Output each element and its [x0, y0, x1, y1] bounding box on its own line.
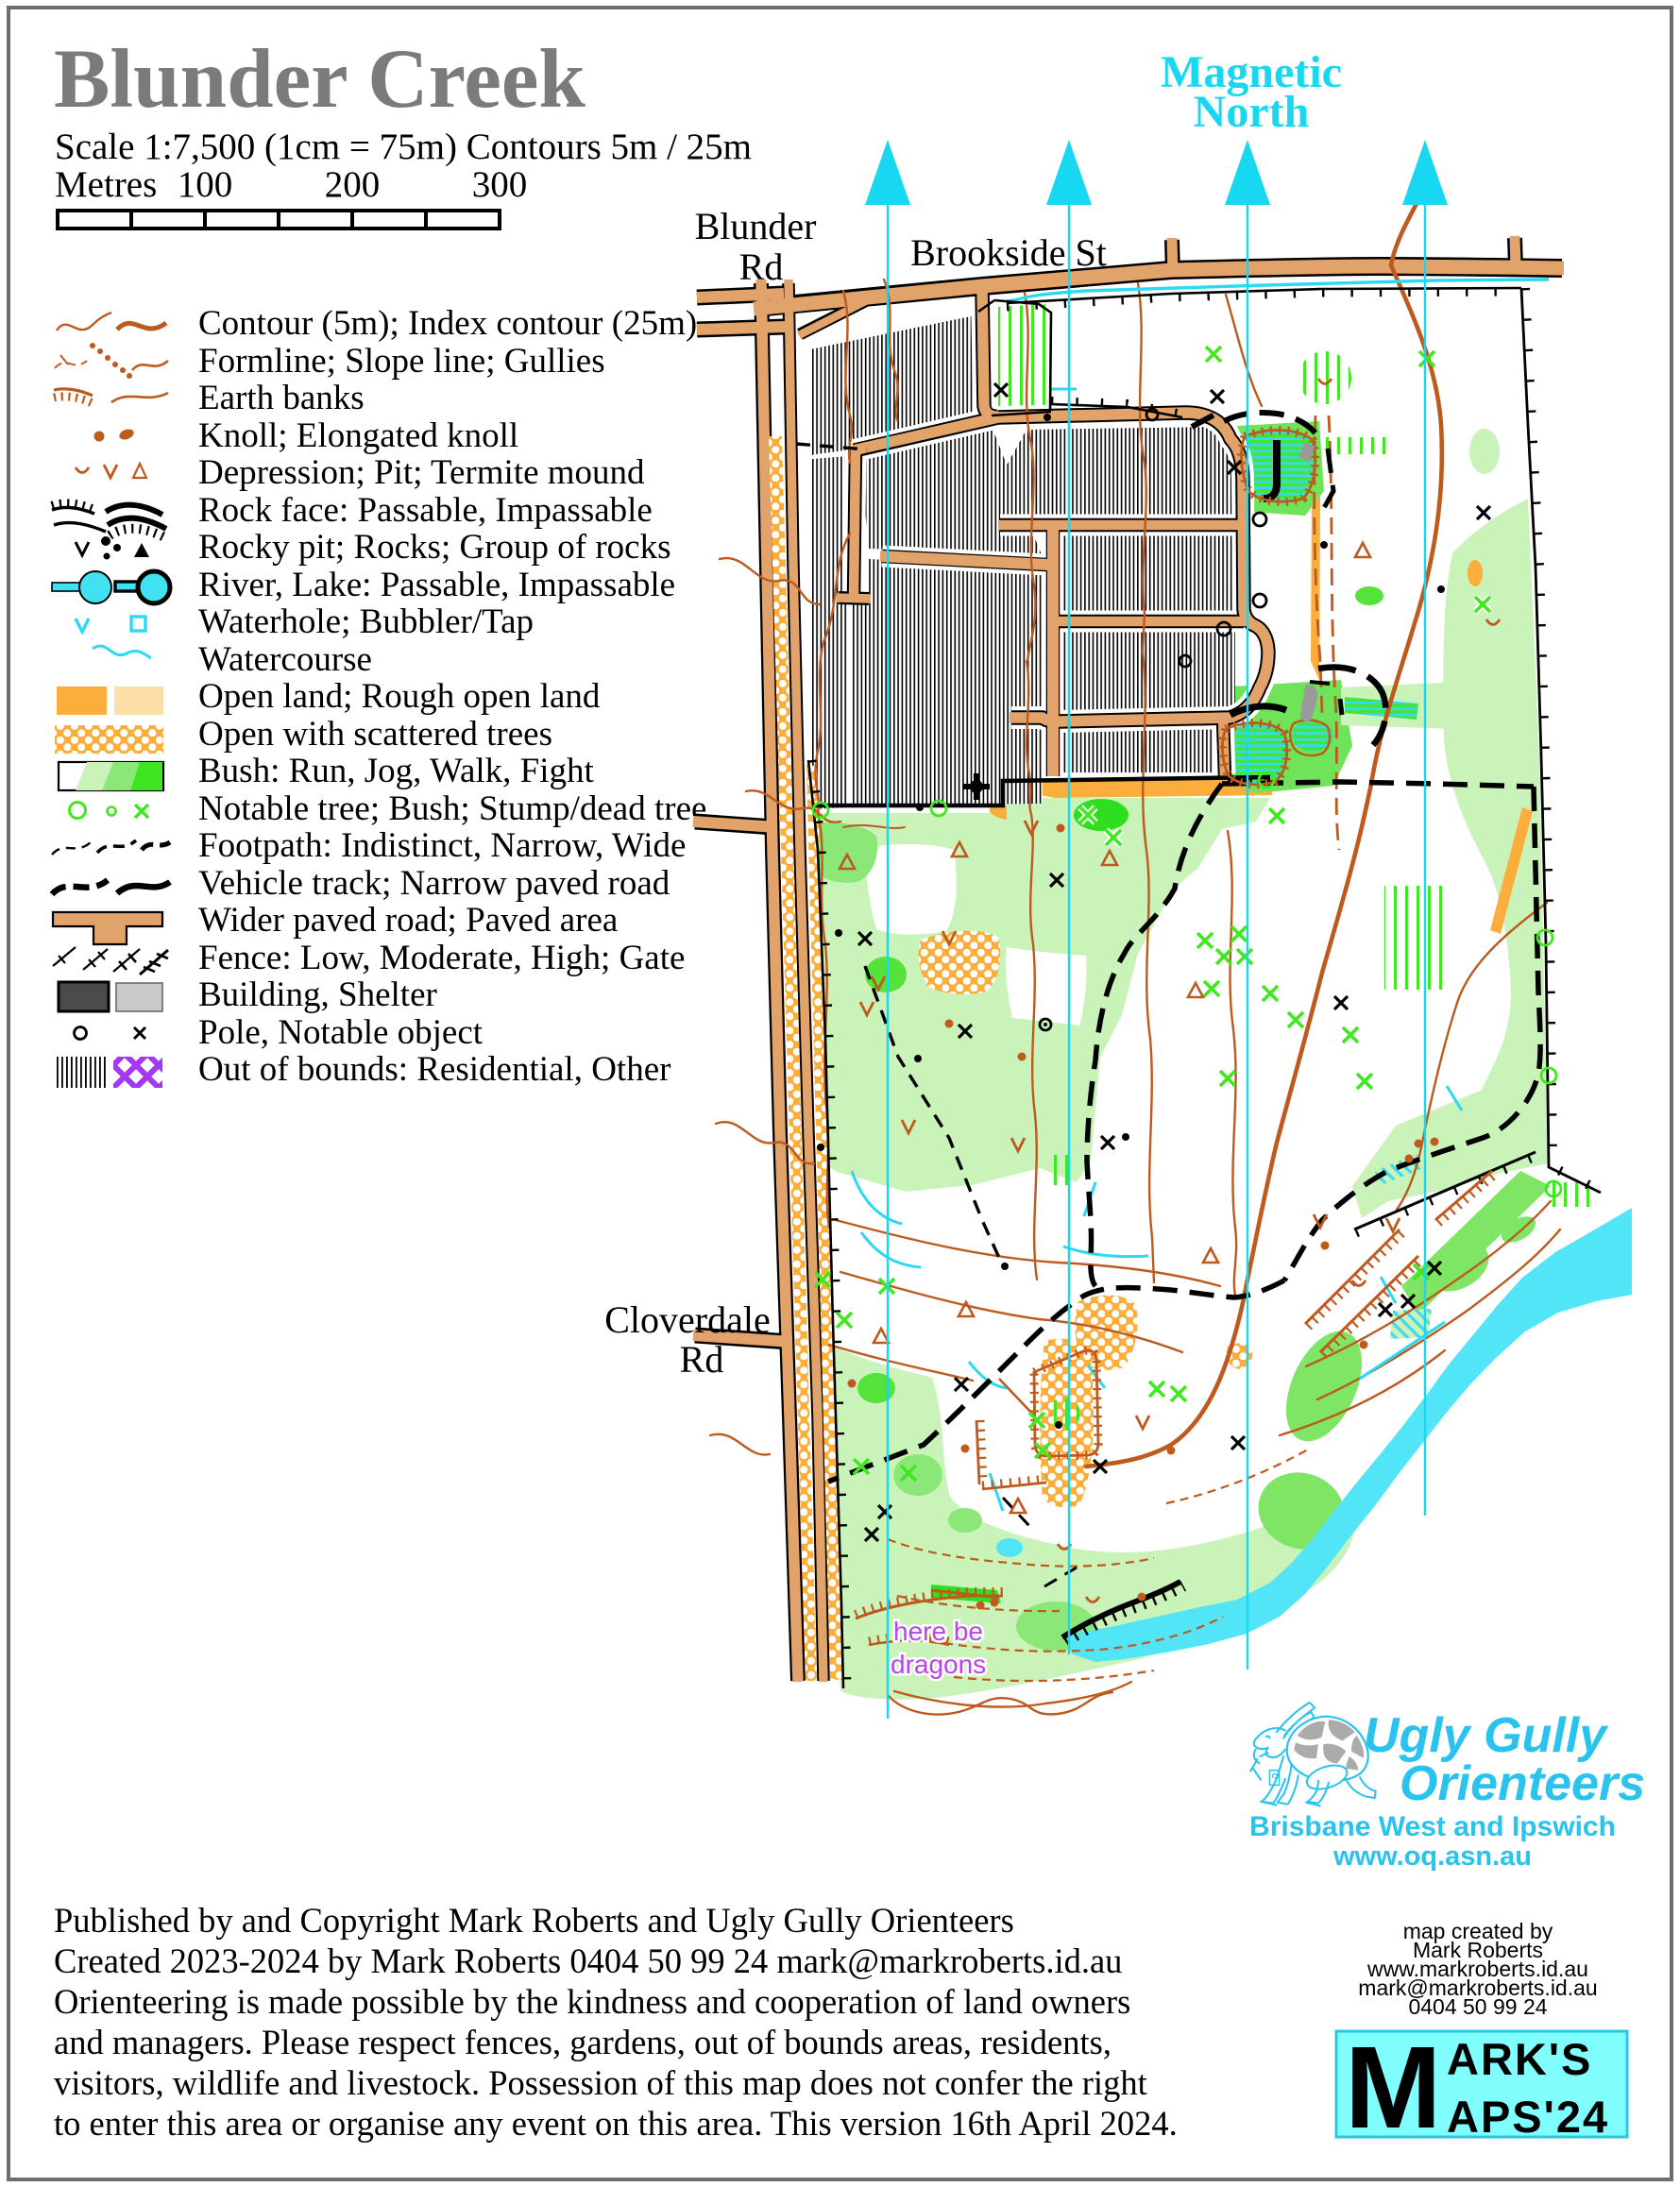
svg-text:Published by and Copyright Mar: Published by and Copyright Mark Roberts … — [54, 1901, 1014, 1940]
svg-text:to enter this area or organise: to enter this area or organise any event… — [54, 2104, 1178, 2143]
svg-text:Watercourse: Watercourse — [198, 640, 372, 679]
svg-text:Rd: Rd — [680, 1338, 724, 1381]
svg-text:Orienteers: Orienteers — [1400, 1756, 1645, 1811]
svg-text:Cloverdale: Cloverdale — [604, 1298, 771, 1341]
svg-text:APS'24: APS'24 — [1447, 2092, 1609, 2142]
svg-text:Created 2023-2024 by Mark Robe: Created 2023-2024 by Mark Roberts 0404 5… — [54, 1941, 1122, 1980]
svg-text:Vehicle track; Narrow paved ro: Vehicle track; Narrow paved road — [198, 864, 670, 903]
svg-text:200: 200 — [325, 164, 381, 205]
svg-text:www.oq.asn.au: www.oq.asn.au — [1332, 1841, 1532, 1872]
svg-text:River, Lake: Passable, Impassa: River, Lake: Passable, Impassable — [198, 566, 675, 604]
svg-text:M: M — [1345, 2024, 1441, 2153]
svg-text:Blunder Creek: Blunder Creek — [54, 33, 585, 126]
svg-text:Brisbane West and Ipswich: Brisbane West and Ipswich — [1249, 1811, 1616, 1842]
svg-text:Fence: Low, Moderate, High; Ga: Fence: Low, Moderate, High; Gate — [198, 939, 685, 977]
svg-text:Rd: Rd — [739, 246, 784, 288]
svg-text:Scale 1:7,500 (1cm = 75m) Con: Scale 1:7,500 (1cm = 75m) Contours 5m / … — [55, 127, 752, 167]
svg-text:Orienteering is made possible: Orienteering is made possible by the kin… — [54, 1982, 1130, 2021]
svg-text:dragons: dragons — [891, 1650, 986, 1679]
svg-text:Brookside St: Brookside St — [910, 231, 1107, 274]
svg-text:and managers. Please respect f: and managers. Please respect fences, gar… — [54, 2023, 1112, 2061]
svg-text:Contour (5m); Index contour (2: Contour (5m); Index contour (25m) — [198, 304, 697, 343]
svg-text:100: 100 — [178, 164, 233, 205]
svg-text:Footpath: Indistinct, Narrow,: Footpath: Indistinct, Narrow, Wide — [198, 826, 686, 865]
svg-text:North: North — [1194, 87, 1310, 137]
svg-text:Rocky pit; Rocks; Group of roc: Rocky pit; Rocks; Group of rocks — [198, 528, 670, 567]
svg-text:Open land; Rough open land: Open land; Rough open land — [198, 677, 601, 716]
svg-text:Blunder: Blunder — [695, 205, 817, 247]
svg-text:Rock face: Passable, Impassabl: Rock face: Passable, Impassable — [198, 491, 653, 530]
svg-text:Pole, Notable object: Pole, Notable object — [198, 1013, 484, 1052]
svg-text:Wider paved road; Paved area: Wider paved road; Paved area — [198, 901, 618, 940]
svg-text:Earth banks: Earth banks — [198, 379, 365, 417]
svg-text:Bush: Run, Jog, Walk, Fight: Bush: Run, Jog, Walk, Fight — [198, 752, 595, 790]
svg-text:300: 300 — [472, 164, 528, 205]
svg-text:0404 50 99 24: 0404 50 99 24 — [1408, 1994, 1547, 2019]
svg-text:Notable tree; Bush; Stump/dead: Notable tree; Bush; Stump/dead tree — [198, 789, 706, 828]
svg-text:Depression; Pit; Termite mound: Depression; Pit; Termite mound — [198, 453, 645, 492]
svg-text:Waterhole; Bubbler/Tap: Waterhole; Bubbler/Tap — [198, 602, 534, 641]
svg-text:Open with scattered trees: Open with scattered trees — [198, 715, 552, 754]
svg-text:Ugly Gully: Ugly Gully — [1364, 1708, 1609, 1763]
svg-text:Building, Shelter: Building, Shelter — [198, 975, 437, 1014]
svg-text:Formline; Slope line; Gullies: Formline; Slope line; Gullies — [198, 342, 605, 381]
svg-text:here be: here be — [893, 1617, 983, 1646]
svg-text:visitors, wildlife and livesto: visitors, wildlife and livestock. Posses… — [54, 2063, 1147, 2102]
svg-text:Out of bounds: Residential, Ot: Out of bounds: Residential, Other — [198, 1050, 670, 1089]
svg-text:ARK'S: ARK'S — [1447, 2034, 1592, 2084]
svg-text:Knoll; Elongated knoll: Knoll; Elongated knoll — [198, 416, 518, 455]
svg-text:Metres: Metres — [55, 164, 157, 205]
